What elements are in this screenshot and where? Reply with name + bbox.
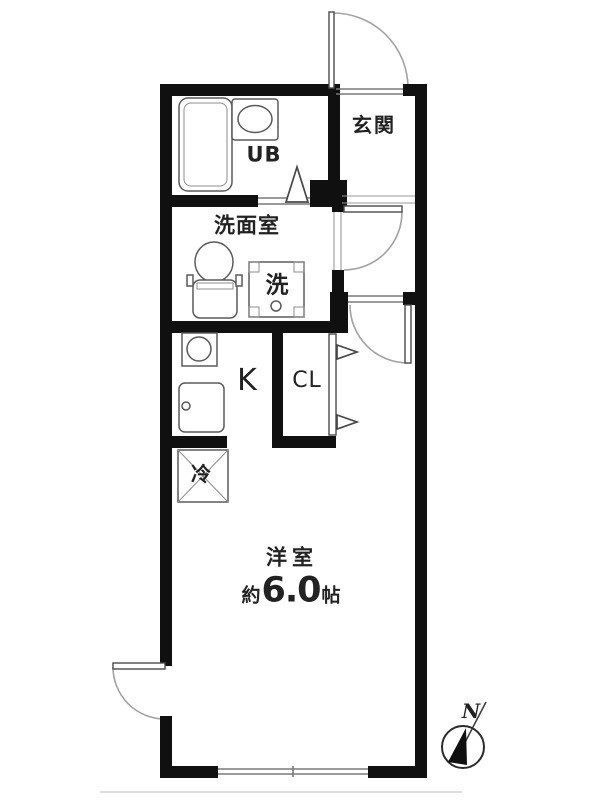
room-label-unit-bath: UB	[246, 145, 281, 166]
room-label-washroom: 洗面室	[214, 216, 280, 237]
toilet-tank	[193, 280, 237, 318]
closet-door-arrow-icon	[337, 345, 357, 359]
toilet-icon	[195, 242, 233, 282]
toilet-side-tab	[236, 275, 242, 286]
side-door-swing-icon	[113, 667, 165, 719]
wall-washroom-bottom	[160, 321, 348, 333]
wall-entrance-divider	[328, 84, 340, 196]
wall-left-upper	[160, 84, 172, 666]
kitchen-fixtures	[179, 333, 224, 432]
wall-bottom-right	[368, 766, 427, 778]
wall-corridor-stub-right	[403, 292, 415, 305]
size-value: 6.0	[261, 574, 320, 609]
wall-kitchen-bottom	[160, 436, 227, 448]
wall-kitchen-closet-divider	[272, 327, 283, 448]
closet-doors	[329, 334, 357, 435]
side-door-leaf	[113, 663, 165, 669]
toilet-side-tab	[187, 275, 193, 286]
pan-drain-circle	[271, 301, 281, 311]
size-prefix: 約	[241, 587, 260, 606]
compass-north-label: N	[462, 701, 480, 721]
washroom-door-swing-icon	[344, 212, 402, 270]
entrance-door-leaf	[329, 12, 334, 88]
closet-door-arrow-icon	[337, 415, 357, 429]
size-unit: 帖	[322, 587, 341, 606]
room-label-closet: CL	[292, 370, 322, 392]
folding-door-icon	[286, 167, 308, 202]
room-label-entrance: 玄関	[352, 115, 396, 135]
floor-plan-drawing	[0, 0, 600, 800]
closet-door-panel	[329, 334, 336, 435]
room-size-label: 約6.0帖	[241, 574, 340, 609]
faucet-dot	[182, 402, 190, 410]
wall-ub-bottom	[160, 195, 258, 207]
entrance-door-swing-icon	[333, 13, 408, 88]
room-label-kitchen: K	[237, 366, 257, 396]
stove-burner-circle	[187, 337, 211, 361]
wall-closet-bottom	[272, 436, 336, 448]
washing-machine-label: 洗	[266, 275, 289, 298]
wash-basin-icon	[238, 106, 272, 133]
bathtub-icon	[179, 98, 232, 191]
room-label-main-room: 洋室	[266, 548, 318, 569]
wall-corridor-stub-left	[330, 292, 348, 333]
wall-top-left	[160, 84, 332, 96]
washroom-door-leaf	[344, 206, 402, 212]
wall-right	[415, 84, 427, 778]
floor-plan-page: 玄関 UB 洗面室 洗 K CL 冷 洋室 約6.0帖 N	[0, 0, 600, 800]
refrigerator-label: 冷	[191, 464, 211, 484]
wall-bottom-left	[160, 766, 218, 778]
main-room-door-swing-icon	[350, 305, 408, 363]
main-room-door-leaf	[405, 305, 411, 363]
